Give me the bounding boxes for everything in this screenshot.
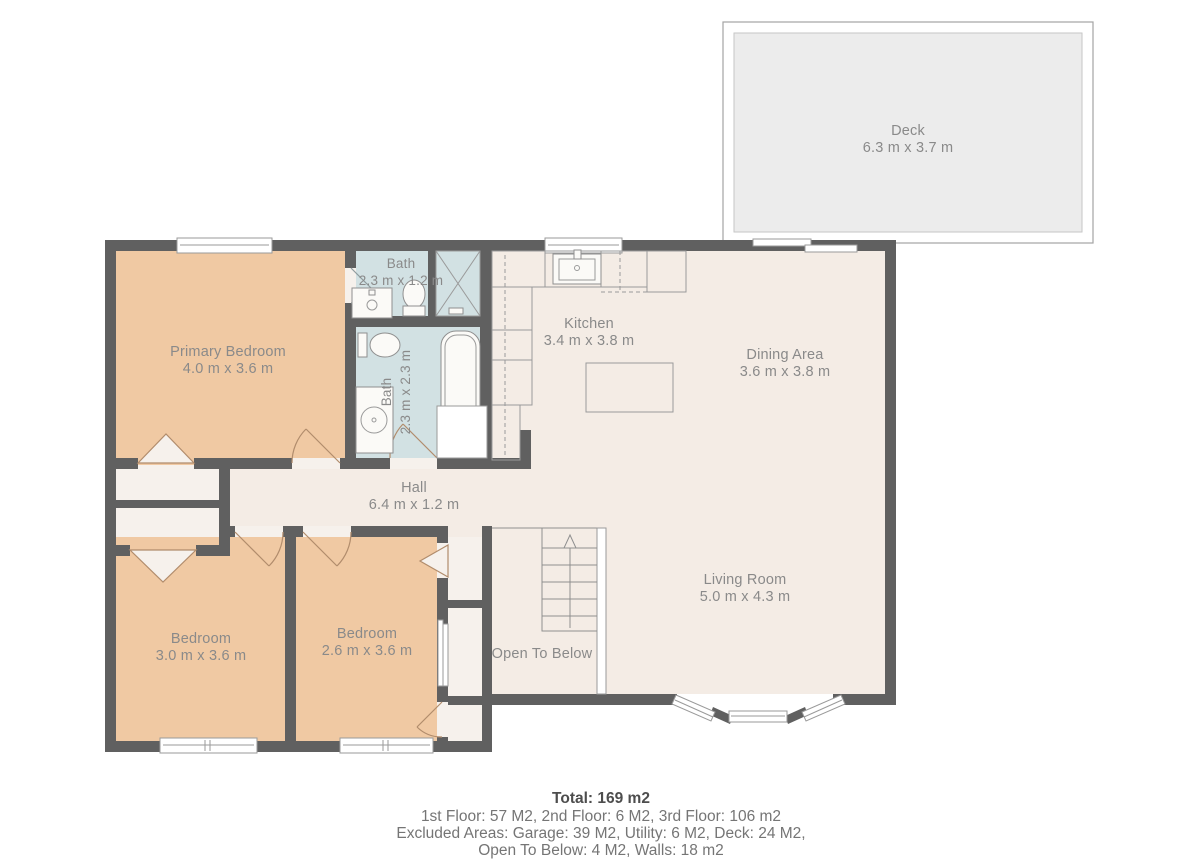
bedroom-left-label: Bedroom — [171, 631, 231, 647]
bath-large-label: Bath — [379, 378, 394, 407]
kitchen-dims: 3.4 m x 3.8 m — [544, 333, 634, 349]
dining-area-label: Dining Area — [746, 347, 824, 363]
living-room-dims: 5.0 m x 4.3 m — [700, 589, 790, 605]
kitchen-label: Kitchen — [564, 316, 614, 332]
deck-dims: 6.3 m x 3.7 m — [863, 140, 953, 156]
stair-railing — [597, 528, 606, 694]
bedroom-mid-label: Bedroom — [337, 626, 397, 642]
summary-total: Total: 169 m2 — [552, 790, 650, 807]
summary-excluded-cont: Open To Below: 4 M2, Walls: 18 m2 — [478, 842, 724, 859]
deck-area: Deck 6.3 m x 3.7 m — [723, 22, 1093, 243]
summary-floors: 1st Floor: 57 M2, 2nd Floor: 6 M2, 3rd F… — [421, 808, 781, 825]
floorplan-canvas: Deck 6.3 m x 3.7 m — [0, 0, 1200, 868]
deck-label: Deck — [891, 123, 925, 139]
closet-slider-icon — [438, 620, 443, 686]
bedroom-mid-dims: 2.6 m x 3.6 m — [322, 643, 412, 659]
bedroom-closet-strip — [448, 537, 482, 741]
area-summary: Total: 169 m2 1st Floor: 57 M2, 2nd Floo… — [396, 790, 805, 859]
floorplan-page: Deck 6.3 m x 3.7 m — [0, 0, 1200, 868]
bath-small-label: Bath — [387, 256, 416, 271]
toilet-icon — [358, 333, 400, 357]
bath-large-dims: 2.3 m x 2.3 m — [398, 350, 413, 434]
closet-slider-icon — [443, 624, 448, 686]
floor-fills — [116, 251, 885, 741]
bedroom-left-dims: 3.0 m x 3.6 m — [156, 648, 246, 664]
primary-bedroom-dims: 4.0 m x 3.6 m — [183, 361, 273, 377]
dining-area-dims: 3.6 m x 3.8 m — [740, 364, 830, 380]
hall-label: Hall — [401, 480, 427, 496]
living-room-label: Living Room — [704, 572, 787, 588]
bath-small-dims: 2.3 m x 1.2 m — [359, 273, 443, 288]
deck-sliding-door-panel — [805, 245, 857, 252]
hall-cabinet — [437, 406, 487, 458]
primary-bedroom-label: Primary Bedroom — [170, 344, 286, 360]
summary-excluded: Excluded Areas: Garage: 39 M2, Utility: … — [396, 825, 805, 842]
open-to-below-label: Open To Below — [492, 646, 593, 662]
deck-sliding-door-panel — [753, 239, 811, 246]
hall-dims: 6.4 m x 1.2 m — [369, 497, 459, 513]
